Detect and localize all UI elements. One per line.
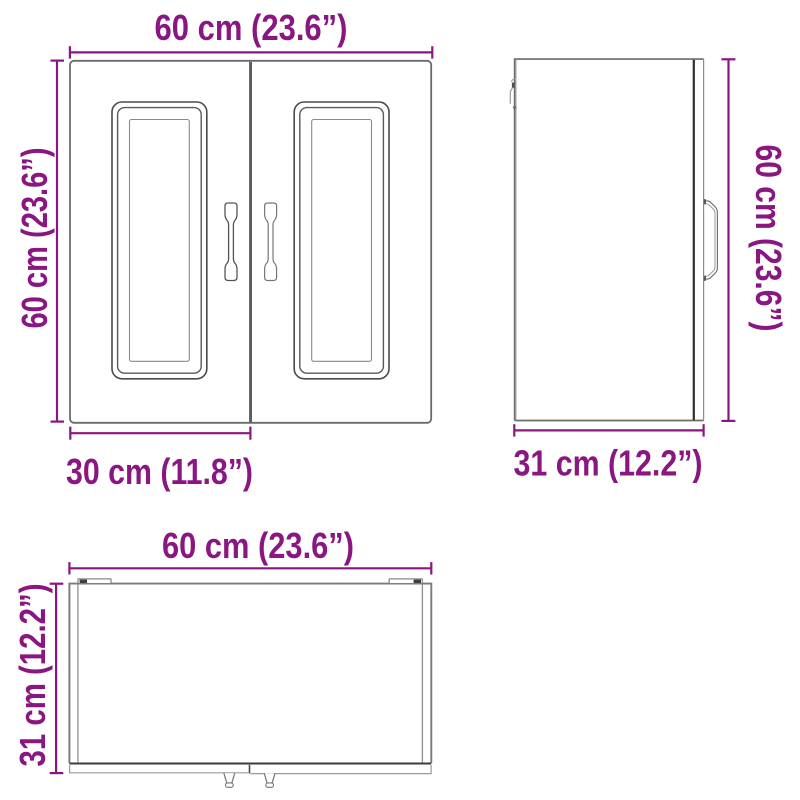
svg-text:60 cm (23.6”): 60 cm (23.6”)	[155, 7, 348, 48]
svg-text:31 cm (12.2”): 31 cm (12.2”)	[12, 584, 53, 767]
svg-text:30 cm (11.8”): 30 cm (11.8”)	[66, 451, 253, 492]
svg-text:60 cm (23.6”): 60 cm (23.6”)	[162, 525, 354, 566]
svg-text:60 cm (23.6”): 60 cm (23.6”)	[14, 148, 55, 329]
svg-text:60 cm (23.6”): 60 cm (23.6”)	[748, 145, 789, 332]
svg-text:31 cm (12.2”): 31 cm (12.2”)	[514, 443, 703, 484]
